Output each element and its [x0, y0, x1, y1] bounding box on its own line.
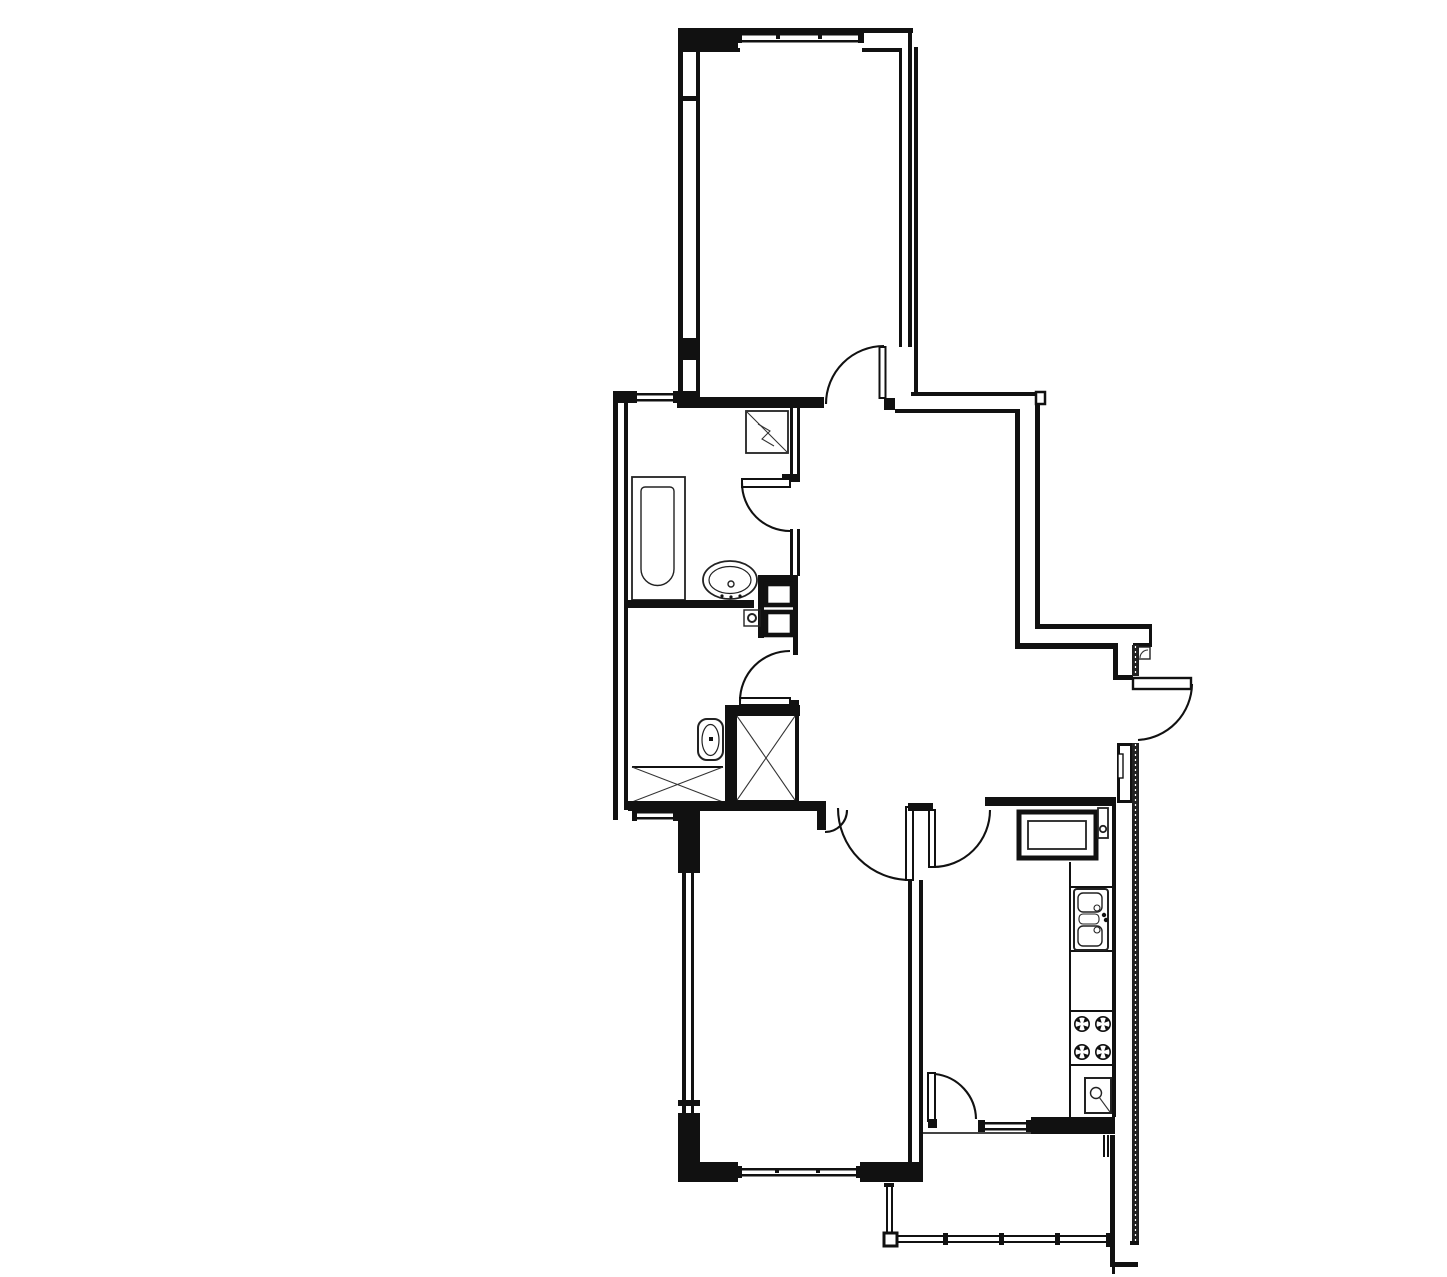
wall: [1113, 675, 1133, 680]
door-swing-arc: [935, 1074, 976, 1119]
door-hinge-block: [884, 398, 895, 410]
wall: [628, 600, 754, 608]
wall: [919, 880, 923, 1162]
wall-joint: [678, 868, 700, 873]
ventilation-shafts: [758, 575, 798, 655]
railing-post: [999, 1233, 1004, 1245]
room-top: [677, 28, 1020, 413]
wall: [613, 391, 618, 820]
wall: [624, 403, 628, 810]
balcony-door: [928, 1073, 976, 1128]
top-room-door: [826, 346, 895, 410]
door-leaf: [928, 1073, 935, 1121]
entrance-door: [1133, 678, 1192, 740]
floor-edge-line: [923, 1132, 1031, 1134]
wall: [1110, 1135, 1115, 1267]
wall: [899, 48, 902, 347]
floor-plan-drawing: [0, 0, 1447, 1277]
door-leaf: [742, 479, 790, 487]
door-swing-arc: [742, 483, 790, 531]
crossed-storage-box: [725, 705, 800, 808]
wall: [797, 408, 800, 478]
wall: [862, 48, 899, 52]
floor-plan-canvas: [0, 0, 1447, 1277]
wall: [914, 47, 918, 396]
ventilation-shaft-upper: [766, 584, 792, 605]
wall: [790, 408, 793, 478]
railing: [897, 1241, 1112, 1243]
wall-piece-with-notch: [1117, 743, 1133, 803]
door-swing-arc-small: [825, 810, 847, 832]
kitchen-cabinet: [1019, 812, 1096, 858]
toilet: [698, 719, 723, 760]
door-swing-arc: [933, 810, 990, 867]
door-swing-arc: [740, 651, 790, 701]
railing-corner: [884, 1233, 897, 1246]
door-leaf: [906, 807, 913, 880]
wall: [908, 30, 912, 347]
wall: [1015, 413, 1020, 648]
water-heater: [1085, 1078, 1111, 1113]
wall: [911, 392, 1041, 396]
wall: [790, 529, 793, 576]
drain-line: [1107, 1135, 1109, 1157]
wall: [700, 48, 740, 52]
bathroom: [613, 391, 800, 820]
bathroom-door: [742, 479, 790, 531]
drain-line: [1103, 1135, 1105, 1157]
wall: [1035, 403, 1040, 628]
kitchen-sink: [1074, 889, 1108, 950]
wall-joint: [613, 391, 632, 403]
wall: [1015, 643, 1118, 649]
door-hinge-block: [928, 1119, 937, 1128]
hatched-wall-long: [1132, 743, 1139, 1243]
bathroom-vent-window-top: [632, 391, 678, 403]
bottom-room-window: [737, 1166, 862, 1178]
door-leaf: [929, 810, 935, 867]
floor-crossed-area: [632, 766, 723, 802]
kitchen-door: [929, 810, 990, 867]
room-bottom: [678, 803, 933, 1182]
gas-stove: [1075, 1017, 1110, 1059]
wall: [895, 409, 1020, 413]
corner-shower: [746, 411, 788, 453]
door-swing-arc: [1138, 684, 1192, 740]
hatch-end-cap: [1130, 1241, 1139, 1245]
railing: [886, 1187, 888, 1233]
bottom-room-door: [817, 803, 933, 880]
door-leaf: [1133, 678, 1191, 689]
door-swing-arc: [826, 346, 884, 404]
ventilation-shaft-lower: [766, 612, 792, 635]
wall: [985, 797, 1113, 806]
wc-small-box: [744, 610, 760, 626]
kitchen-balcony-window: [978, 1120, 1032, 1133]
wall-corner-block: [678, 1162, 738, 1182]
wall-joint: [678, 1100, 700, 1106]
railing-post: [943, 1233, 948, 1245]
top-room-window: [737, 32, 864, 43]
wall: [691, 872, 694, 1113]
railing: [891, 1187, 893, 1233]
kitchen: [923, 797, 1116, 1134]
door-leaf: [740, 698, 790, 705]
door-swing-arc: [838, 808, 910, 880]
wall: [682, 872, 686, 1113]
wall-joint: [678, 96, 700, 101]
wall: [908, 880, 912, 1162]
wall: [677, 397, 824, 408]
wall-block: [678, 810, 700, 872]
wall: [1112, 1267, 1115, 1274]
bathtub: [632, 477, 685, 600]
railing-cap: [884, 1183, 894, 1187]
door-leaf: [880, 347, 886, 398]
wall-notch: [1118, 754, 1123, 778]
door-post: [817, 803, 826, 830]
wc: [628, 651, 826, 821]
wall-end-cap: [1036, 392, 1045, 404]
wall: [797, 529, 800, 576]
wall-block: [678, 338, 700, 360]
wall-corner-block: [860, 1162, 923, 1182]
railing: [897, 1235, 1112, 1237]
railing-post: [1055, 1233, 1060, 1245]
wall: [628, 801, 826, 811]
gas-meter: [1098, 808, 1108, 838]
wall: [1031, 1117, 1115, 1134]
wall-block: [678, 1113, 700, 1163]
wash-basin: [703, 561, 757, 599]
wall: [1149, 628, 1152, 645]
wc-door: [740, 651, 799, 710]
wall: [1035, 624, 1152, 629]
wall: [1110, 1262, 1138, 1267]
